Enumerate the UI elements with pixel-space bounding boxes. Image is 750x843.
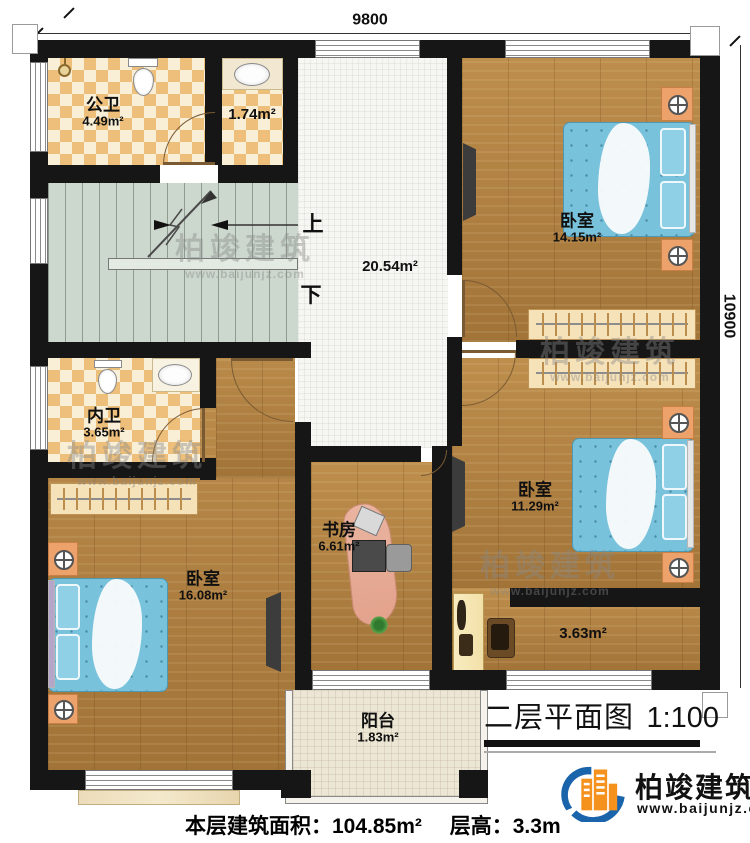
room-label-study: 书房 6.61m²: [318, 521, 359, 552]
room-area: 20.54m²: [362, 259, 418, 275]
title-underline-thin: [484, 751, 716, 753]
stairs-up-label: 上: [303, 214, 324, 236]
exterior-block: [690, 26, 720, 56]
toilet-icon: [128, 58, 158, 67]
room-name: 卧室: [553, 212, 601, 230]
room-area: 6.61m²: [318, 539, 359, 553]
wardrobe: [528, 309, 696, 340]
dimension-line-top: [35, 33, 716, 34]
nightstand: [661, 87, 693, 121]
wall-study-right: [432, 446, 452, 676]
vanity-mirror: [457, 600, 466, 630]
window-balcony-door: [312, 670, 430, 690]
balcony-column: [281, 770, 311, 798]
floor-plan: 公卫 4.49m² 1.74m² 上 20.54m² 下 卧室 14.15m² …: [0, 0, 750, 843]
window: [30, 62, 48, 152]
nightstand: [48, 542, 78, 576]
bed-headboard: [687, 440, 694, 548]
brand-logo: 柏竣建筑 www.baijunjz.com: [545, 760, 745, 824]
wall-washroom-right: [283, 58, 298, 183]
bed-pillow: [56, 584, 80, 630]
vanity-items: [459, 634, 473, 656]
door-leaf: [231, 358, 293, 361]
nightstand: [661, 239, 693, 271]
lamp-icon: [54, 700, 74, 720]
plan-title: 二层平面图 1:100: [484, 694, 720, 753]
bed-pillow: [662, 494, 687, 540]
room-area: 3.65m²: [83, 425, 124, 439]
toilet-icon: [94, 360, 122, 368]
room-area: 4.49m²: [82, 114, 123, 128]
window: [505, 40, 650, 58]
room-area: 14.15m²: [553, 230, 601, 244]
wall-ensuite-bottom: [30, 462, 216, 478]
room-name: 内卫: [83, 407, 124, 425]
door-leaf: [202, 408, 205, 462]
room-name: 阳台: [357, 712, 398, 730]
room-area: 1.83m²: [357, 730, 398, 744]
room-name: 公卫: [82, 96, 123, 114]
plant-icon: [370, 616, 388, 634]
room-area: 16.08m²: [179, 588, 227, 602]
bed-pillow: [662, 444, 687, 490]
lamp-icon: [669, 558, 689, 578]
dimension-tick: [63, 7, 74, 18]
hangers: [58, 488, 189, 511]
wall-hall-bedrooms: [447, 40, 462, 275]
wall-ensuite-right: [200, 342, 216, 408]
stair-handrail: [108, 258, 298, 270]
lamp-icon: [668, 246, 688, 266]
brand-url: www.baijunjz.com: [637, 800, 750, 816]
window: [30, 198, 48, 264]
wall-between-bedrooms: [516, 340, 702, 358]
door-leaf: [163, 162, 215, 165]
bed-pillow: [56, 634, 80, 680]
bed-headboard: [48, 580, 55, 688]
room-label-balcony: 阳台 1.83m²: [357, 712, 398, 743]
wall-bath-bottom: [30, 165, 160, 183]
footer-height: 层高：3.3m: [450, 815, 561, 838]
dimension-line-right: [740, 45, 741, 688]
tv-icon: [463, 143, 476, 221]
room-area: 1.74m²: [228, 107, 276, 123]
wall-hall-bedroom16: [295, 342, 311, 358]
shower-head: [58, 64, 71, 77]
door-leaf: [462, 280, 465, 337]
wall-right: [700, 40, 720, 690]
nightstand: [662, 552, 694, 583]
bay-window: [85, 770, 233, 790]
room-label-ensuite-bath: 内卫 3.65m²: [83, 407, 124, 438]
brand-logo-icon: [545, 762, 631, 822]
footer-annotation: 本层建筑面积：104.85m² 层高：3.3m: [185, 810, 605, 840]
wall-bedroom11-corridor: [510, 588, 702, 607]
balcony-rail: [285, 796, 488, 804]
plan-title-text: 二层平面图: [484, 702, 634, 734]
nightstand: [48, 694, 78, 724]
hangers: [537, 362, 686, 384]
wall-under-stairs: [30, 342, 295, 358]
exterior-block: [12, 24, 38, 54]
dimension-right-label: 10900: [720, 294, 737, 339]
wardrobe: [50, 483, 198, 515]
room-name: 卧室: [179, 570, 227, 588]
dimension-top-label: 9800: [352, 13, 388, 30]
room-label-public-bath: 公卫 4.49m²: [82, 96, 123, 127]
room-label-hallway: 20.54m²: [362, 259, 418, 275]
door-leaf: [462, 350, 516, 353]
room-label-corridor: 3.63m²: [559, 626, 607, 642]
wardrobe: [528, 358, 696, 389]
room-area: 11.29m²: [511, 499, 559, 513]
room-label-bedroom-16: 卧室 16.08m²: [179, 570, 227, 601]
room-name: 书房: [318, 521, 359, 539]
hangers: [537, 313, 686, 335]
room-name: 卧室: [511, 481, 559, 499]
lamp-icon: [54, 550, 74, 570]
room-label-bedroom-11: 卧室 11.29m²: [511, 481, 559, 512]
bay-window-sill: [78, 790, 240, 805]
hallway-floor: [298, 58, 448, 448]
lamp-icon: [669, 413, 689, 433]
room-label-washroom: 1.74m²: [228, 107, 276, 123]
wall-study-top: [311, 446, 421, 462]
bed-pillow: [660, 181, 686, 229]
bed-pillow: [660, 128, 686, 176]
sink-icon: [158, 364, 192, 386]
dimension-tick: [729, 35, 740, 46]
lamp-icon: [668, 95, 688, 115]
tv-icon: [266, 592, 281, 672]
window: [30, 366, 48, 450]
title-underline-thick: [484, 740, 700, 747]
stairs-down-label: 下: [301, 285, 322, 307]
vanity-stool-top: [491, 624, 509, 650]
footer-floor-area: 本层建筑面积：104.85m²: [185, 815, 422, 838]
room-area: 3.63m²: [559, 626, 607, 642]
wall-hall-bedroom16: [295, 422, 311, 672]
sink-icon: [234, 63, 270, 86]
nightstand: [662, 406, 694, 439]
desk-chair: [386, 544, 412, 572]
bed-headboard: [689, 124, 696, 233]
window: [315, 40, 420, 58]
plan-title-scale: 1:100: [646, 702, 719, 734]
room-label-bedroom-14: 卧室 14.15m²: [553, 212, 601, 243]
balcony-column: [459, 770, 488, 798]
tv-icon: [452, 456, 465, 532]
window: [506, 670, 652, 690]
wall-hall-bedrooms: [447, 337, 462, 446]
